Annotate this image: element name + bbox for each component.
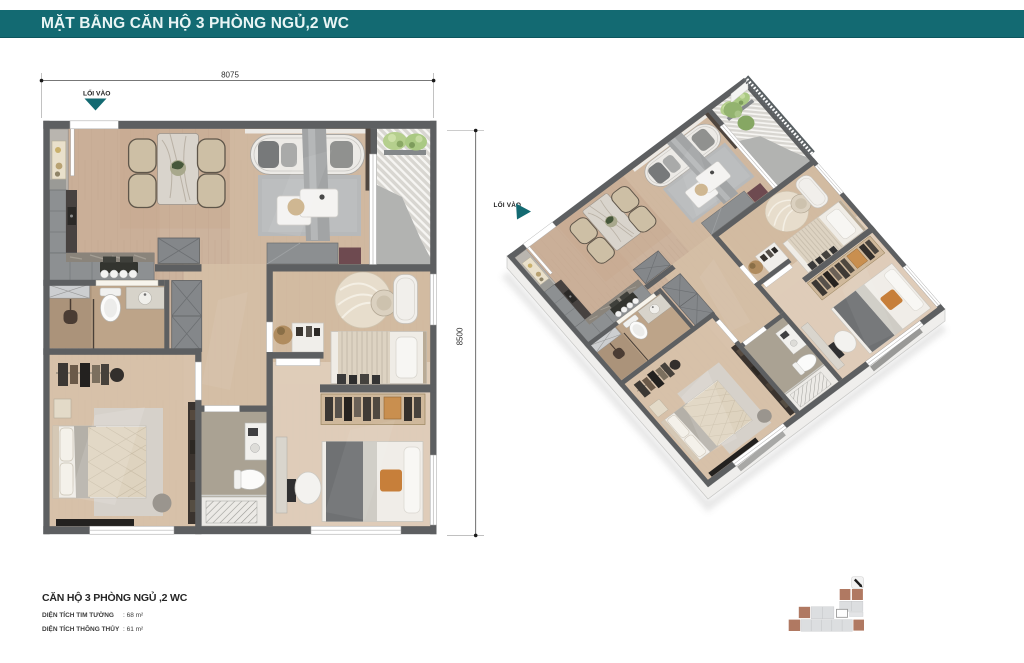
svg-text:LỐI VÀO: LỐI VÀO [83, 88, 111, 98]
svg-text:8075: 8075 [221, 71, 239, 80]
svg-text:8500: 8500 [455, 327, 464, 345]
